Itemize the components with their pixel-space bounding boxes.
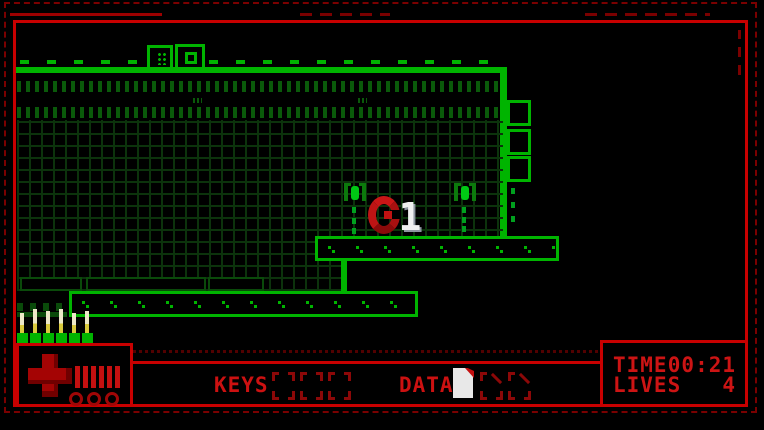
keys-label: KEYS <box>214 375 269 396</box>
border-trace-top-mid <box>300 13 390 16</box>
border-trace-right <box>738 30 741 75</box>
wall-socket-block <box>507 100 531 126</box>
time-lives-panel: TIME 00:21 LIVES 4 <box>600 340 748 407</box>
lives-label: LIVES <box>613 376 681 395</box>
candle-sprite <box>42 311 55 345</box>
background-structure <box>208 277 264 291</box>
health-pip <box>91 366 96 388</box>
candle-sprite <box>29 311 42 345</box>
key-slot-empty <box>328 372 351 400</box>
data-slot-empty <box>480 372 503 400</box>
connector-wall <box>341 259 347 293</box>
wall-texture-row <box>17 107 500 118</box>
health-panel <box>16 343 133 407</box>
key-slot-empty <box>272 372 295 400</box>
candle-sprite <box>55 311 68 345</box>
health-pip <box>75 366 80 388</box>
door-dot-grid <box>157 52 168 65</box>
border-trace-top-left <box>10 13 162 16</box>
health-pip <box>99 366 104 388</box>
background-structure <box>20 277 82 291</box>
dripper-sprite <box>454 183 476 203</box>
wall-marking <box>358 98 367 103</box>
wall-socket-block <box>507 129 531 155</box>
game-viewport[interactable]: 1 KEYS DATA TIME 00:21 LIVES 4 <box>0 0 764 430</box>
candle-sprite <box>68 311 81 345</box>
health-pip <box>83 366 88 388</box>
candle-sprite <box>81 311 94 345</box>
wall-texture-row <box>17 81 500 92</box>
data-file-icon-collected <box>451 366 477 400</box>
hud-dotted-trim <box>133 350 600 353</box>
door-window <box>185 52 197 64</box>
dripper-sprite <box>344 183 366 203</box>
ceiling-dashes <box>20 60 504 64</box>
health-pip <box>107 366 112 388</box>
mid-platform <box>315 236 559 261</box>
candle-sprite <box>16 311 29 345</box>
wall-marking <box>193 98 202 103</box>
reserve-marker-icon <box>69 392 83 406</box>
wall-socket-block <box>507 156 531 182</box>
health-pip <box>115 366 120 388</box>
reserve-marker-icon <box>105 392 119 406</box>
data-slot-empty <box>508 372 531 400</box>
data-label: DATA <box>399 375 454 396</box>
reserve-marker-icon <box>87 392 101 406</box>
player-sprite: 1 <box>397 201 423 234</box>
enemy-saw-sprite <box>368 196 400 234</box>
key-slot-empty <box>300 372 323 400</box>
lives-value: 4 <box>722 376 736 395</box>
border-trace-top-right <box>585 13 710 16</box>
background-structure <box>86 277 206 291</box>
lower-platform <box>69 291 418 317</box>
top-platform <box>16 67 507 73</box>
